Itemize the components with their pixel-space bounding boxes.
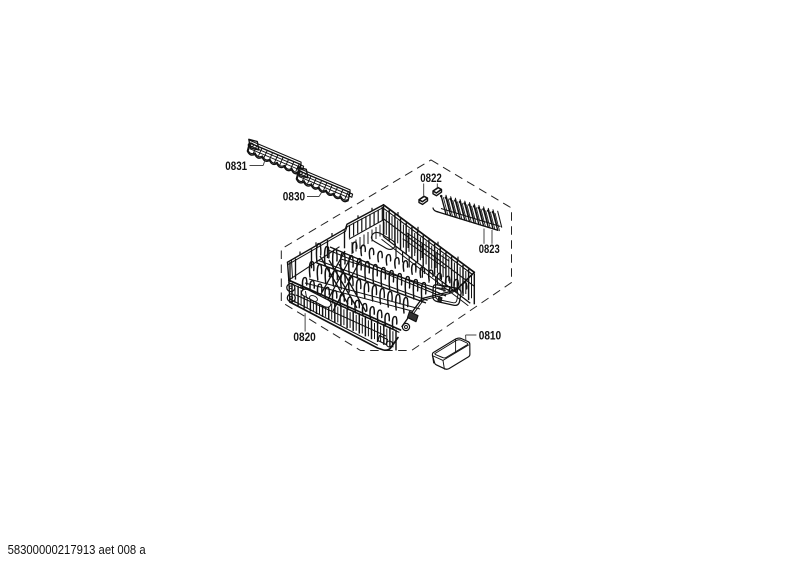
svg-text:0831: 0831 <box>225 159 247 173</box>
svg-text:0810: 0810 <box>479 329 502 343</box>
svg-text:58300000217913 aet 008 a: 58300000217913 aet 008 a <box>8 542 147 557</box>
svg-text:0830: 0830 <box>283 190 306 204</box>
svg-text:0823: 0823 <box>479 242 500 256</box>
svg-text:0822: 0822 <box>420 171 442 185</box>
svg-text:0820: 0820 <box>293 330 316 344</box>
